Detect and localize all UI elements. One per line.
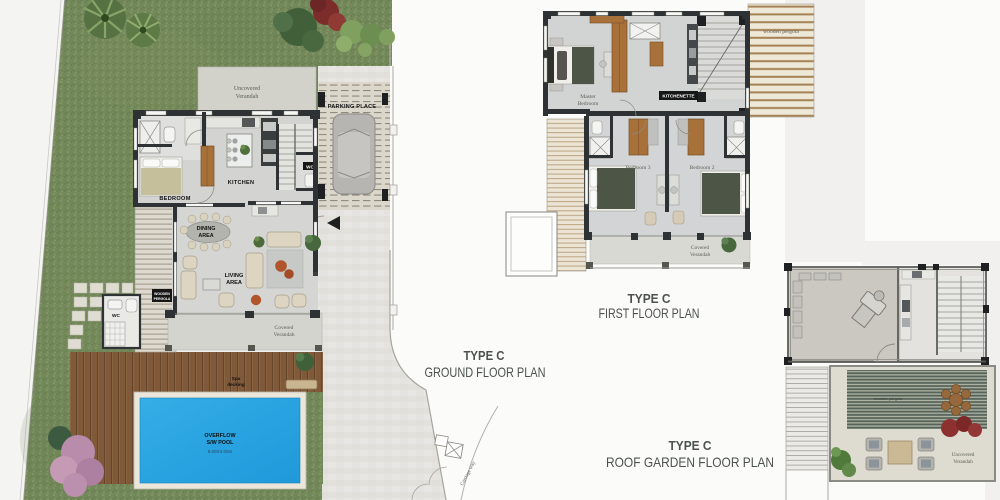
svg-text:DINING: DINING xyxy=(197,226,216,232)
svg-text:wooden pergola: wooden pergola xyxy=(874,396,903,401)
svg-text:FIRST FLOOR PLAN: FIRST FLOOR PLAN xyxy=(599,306,700,321)
svg-text:Uncovered: Uncovered xyxy=(952,452,975,458)
svg-text:Covered: Covered xyxy=(275,325,294,331)
svg-text:PARKING PLACE: PARKING PLACE xyxy=(328,104,377,110)
svg-text:Bedroom 3: Bedroom 3 xyxy=(625,165,650,171)
svg-text:wooden pergola: wooden pergola xyxy=(763,29,799,35)
svg-text:PERGOLA: PERGOLA xyxy=(154,297,171,301)
svg-text:ROOF GARDEN FLOOR PLAN: ROOF GARDEN FLOOR PLAN xyxy=(606,454,774,470)
svg-text:Covered: Covered xyxy=(691,245,710,251)
svg-text:8.00X4.00m: 8.00X4.00m xyxy=(208,449,233,454)
svg-text:Bedroom: Bedroom xyxy=(578,101,599,107)
svg-text:OVERFLOW: OVERFLOW xyxy=(204,433,236,439)
svg-text:GROUND FLOOR PLAN: GROUND FLOOR PLAN xyxy=(425,364,546,380)
svg-text:BEDROOM: BEDROOM xyxy=(159,196,190,202)
svg-text:AREA: AREA xyxy=(226,280,242,286)
svg-text:KITCHENETTE: KITCHENETTE xyxy=(662,94,694,99)
svg-text:TYPE C: TYPE C xyxy=(464,348,506,363)
svg-text:decking: decking xyxy=(227,382,245,387)
svg-text:LIVING: LIVING xyxy=(225,273,244,279)
svg-text:Verandah: Verandah xyxy=(953,459,973,465)
svg-text:KITCHEN: KITCHEN xyxy=(228,180,255,186)
svg-text:Uncovered: Uncovered xyxy=(234,86,260,92)
svg-text:Master: Master xyxy=(580,94,596,100)
svg-text:WC: WC xyxy=(112,313,121,319)
svg-text:S/W POOL: S/W POOL xyxy=(207,440,235,446)
svg-text:Bedroom 2: Bedroom 2 xyxy=(689,165,714,171)
svg-text:Verandah: Verandah xyxy=(236,94,259,100)
svg-text:Verandah: Verandah xyxy=(273,332,294,338)
svg-text:WOODEN: WOODEN xyxy=(154,292,170,296)
svg-text:TYPE C: TYPE C xyxy=(628,291,672,306)
svg-text:Spa: Spa xyxy=(232,376,241,381)
svg-text:Verandah: Verandah xyxy=(690,252,711,258)
svg-text:TYPE C: TYPE C xyxy=(669,438,713,453)
svg-text:AREA: AREA xyxy=(198,233,213,239)
